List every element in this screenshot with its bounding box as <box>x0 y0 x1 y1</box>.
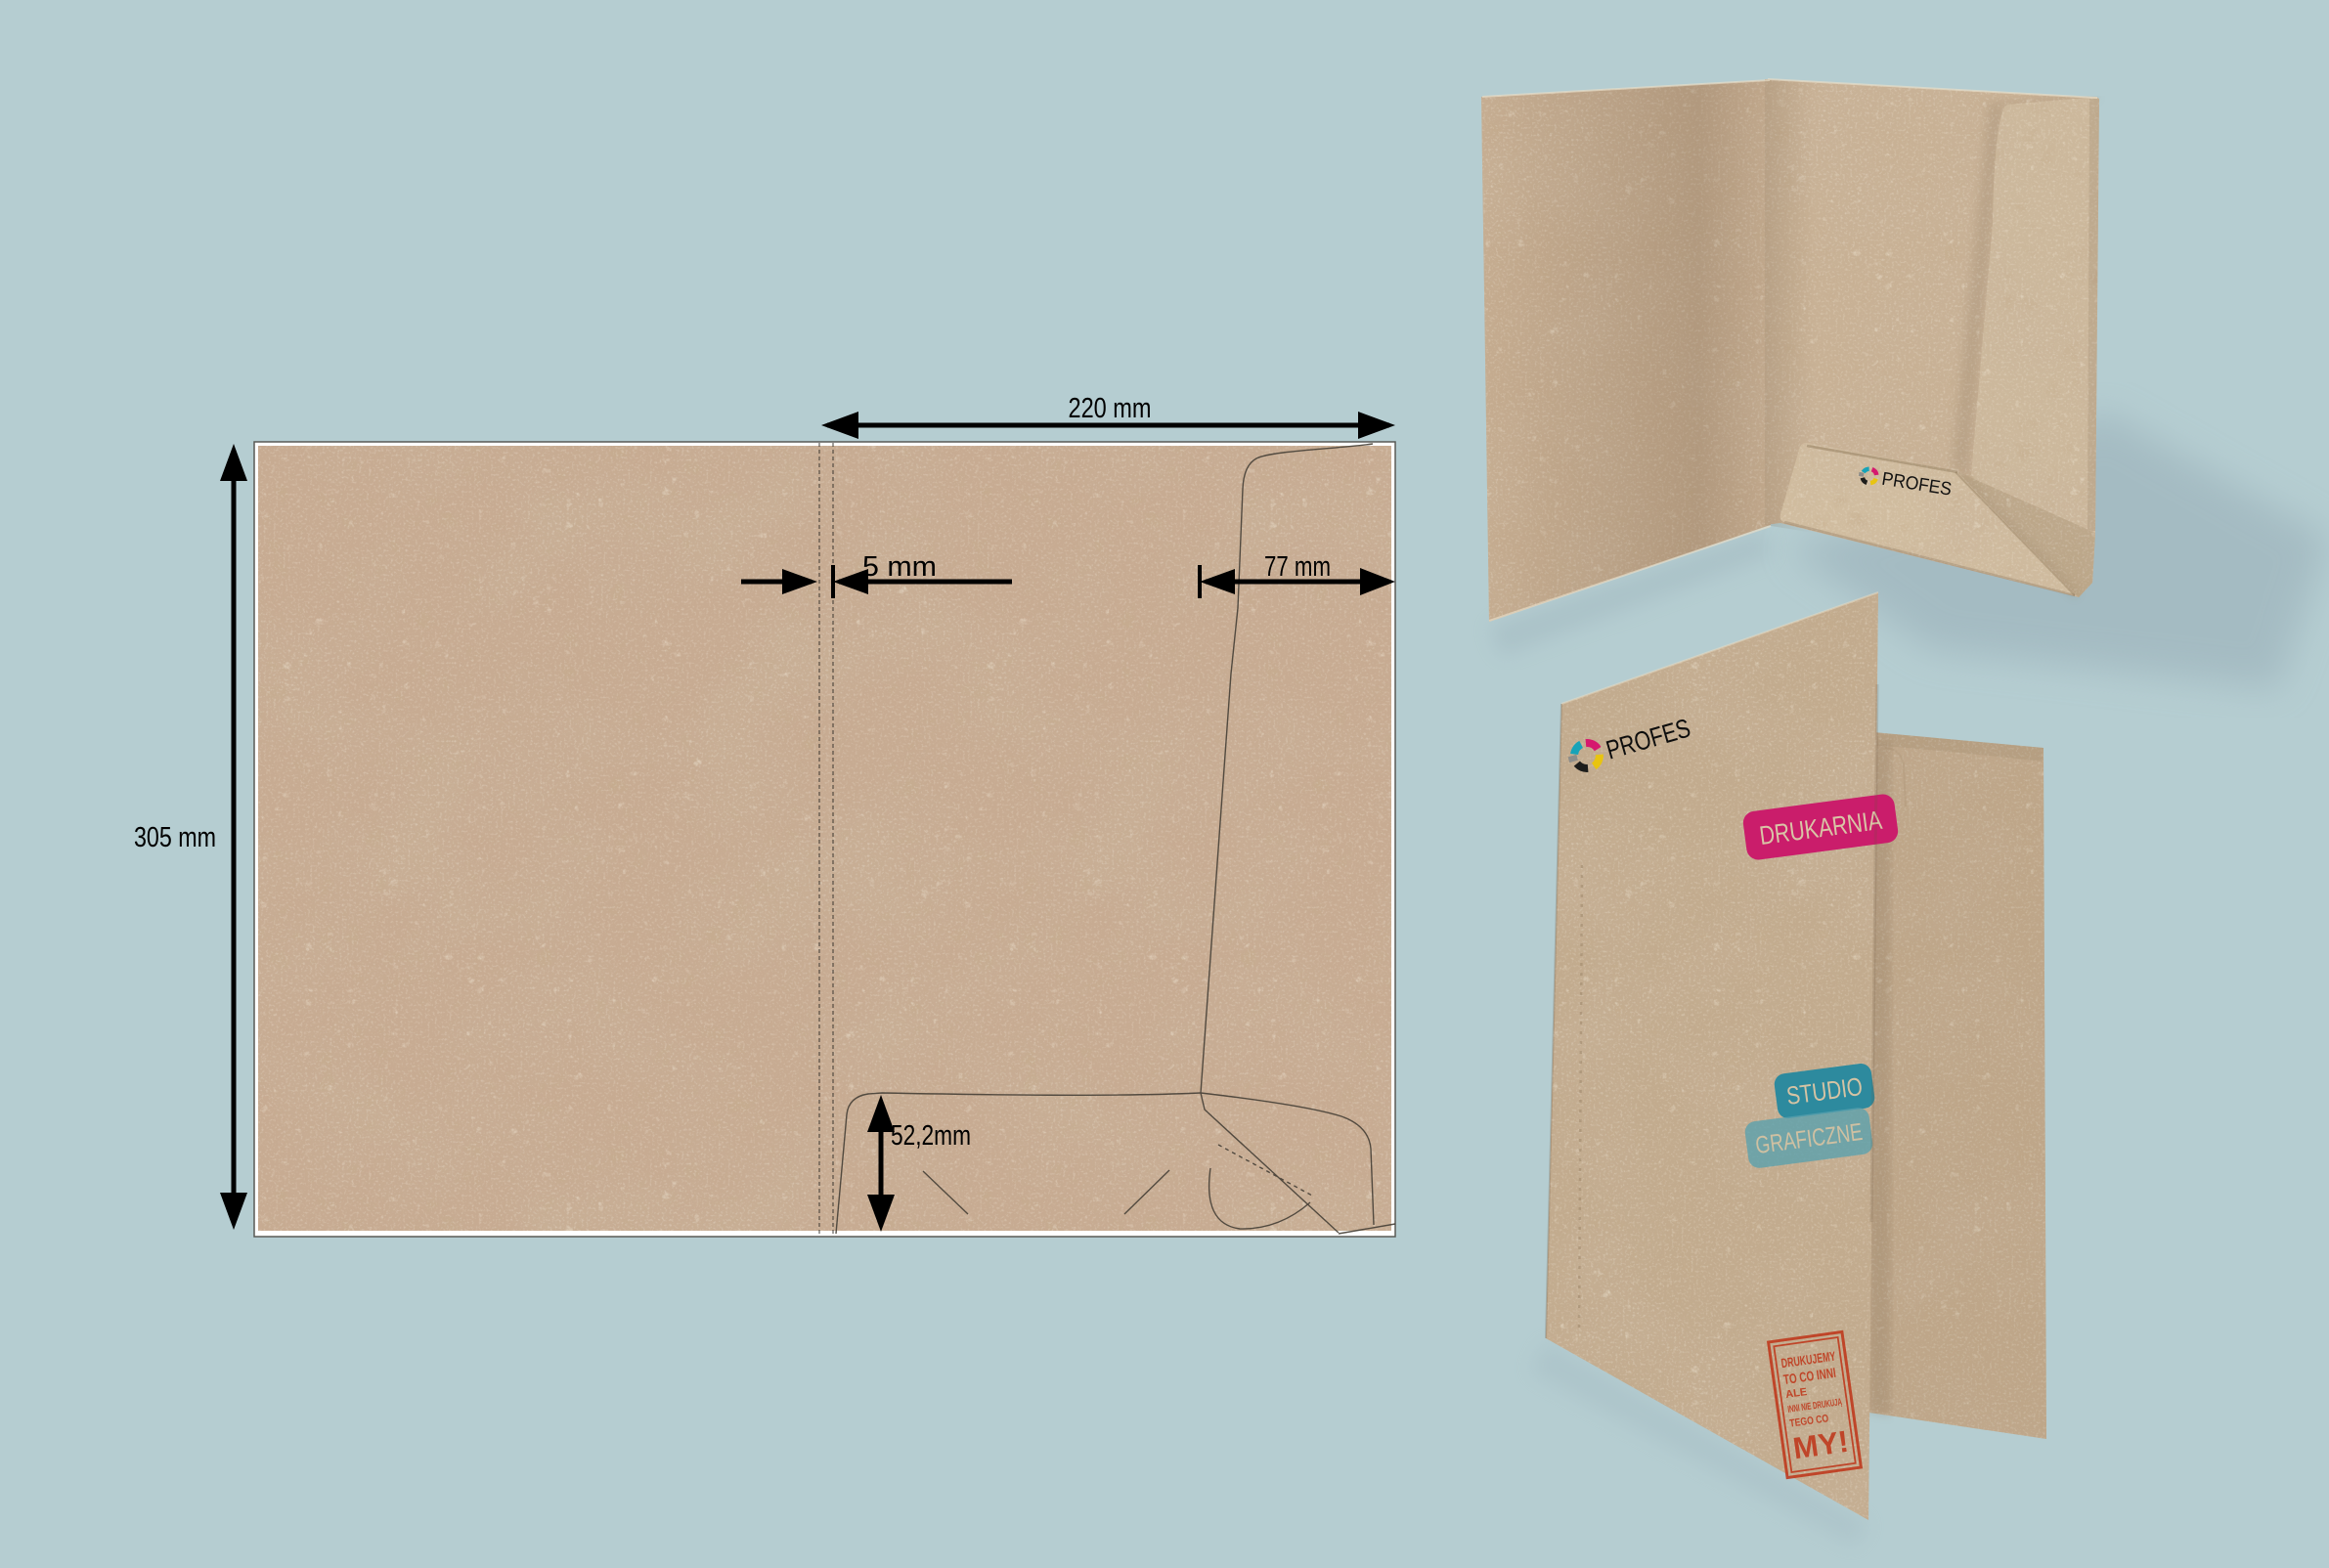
svg-text:5 mm: 5 mm <box>862 551 937 583</box>
svg-text:52,2mm: 52,2mm <box>891 1120 971 1152</box>
svg-text:220 mm: 220 mm <box>1069 393 1152 424</box>
svg-text:305 mm: 305 mm <box>134 822 216 853</box>
svg-text:77 mm: 77 mm <box>1264 551 1331 583</box>
